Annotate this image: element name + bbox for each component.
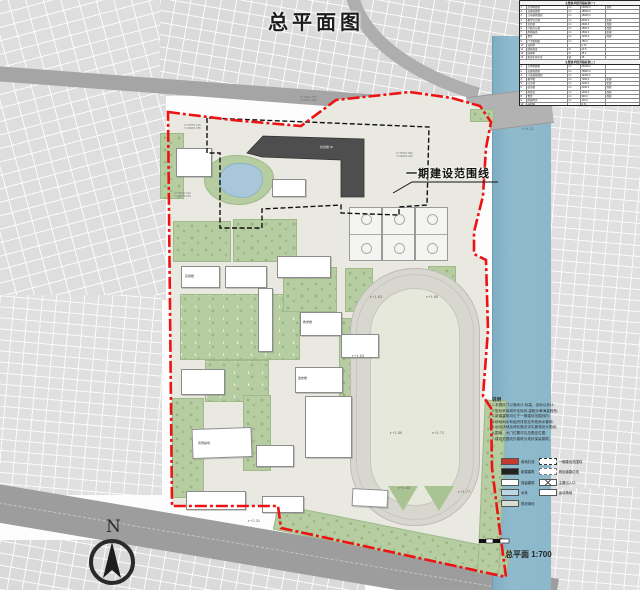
table-cell: 计容建筑面积 <box>527 74 568 77</box>
legend-label: 运动场地 <box>559 490 573 495</box>
table-cell: 9 <box>520 99 527 102</box>
building <box>256 445 294 467</box>
table-cell <box>606 14 640 17</box>
table-cell: 总建筑面积 <box>527 10 568 13</box>
spot-elevation: +1.63 <box>370 294 382 299</box>
building <box>225 266 267 288</box>
table-cell: 总用地面积 <box>527 6 568 9</box>
table-cell: 食堂 <box>527 95 568 98</box>
green-patch-northeast <box>470 109 494 122</box>
table-cell: m² <box>568 74 581 77</box>
table-cell: 保留 <box>606 91 640 94</box>
legend-item: 一期建设范围线 <box>539 458 583 464</box>
legend-swatch <box>501 468 519 475</box>
table-cell: 新建 <box>606 19 640 22</box>
building <box>272 179 306 197</box>
coordinate-label: X=78741.312Y=28079.158 <box>174 192 191 199</box>
court-circle <box>427 243 438 254</box>
context-blocks-west <box>0 295 162 495</box>
north-label: N <box>106 517 121 537</box>
table-cell: m² <box>568 27 581 30</box>
table-cell: 4 <box>520 78 527 81</box>
table-cell: 1 <box>520 65 527 68</box>
legend-column-right: 一期建设范围线规划道路红线主要出入口运动场地 <box>539 458 583 506</box>
table-cell: 13 <box>520 56 527 59</box>
table-cell: 新建 <box>606 78 640 81</box>
coordinate-label: X=78801.554Y=28131.906 <box>300 96 317 103</box>
coordinate-line: Y=28166.420 <box>396 155 413 158</box>
table-cell: 8400.0 <box>581 19 606 22</box>
table-cell: 建筑密度 <box>527 48 568 51</box>
dark-building-label: 综合楼 4F <box>320 145 333 149</box>
legend-label: 主要出入口 <box>559 480 576 485</box>
building <box>186 491 246 510</box>
table-cell: 1800.0 <box>581 27 606 30</box>
scale-label: 总平面 1:700 <box>505 549 552 560</box>
north-arrow-needle <box>103 542 121 578</box>
legend-swatch <box>539 458 557 465</box>
table-cell: 7 <box>520 91 527 94</box>
legend-item: 用地红线 <box>501 458 535 464</box>
spot-elevation: +1.59 <box>390 430 402 435</box>
table-cell: 4 <box>520 19 527 22</box>
site-plan-canvas: N 总平面图 一期建设范围线 总平面 1:700 综合楼 4F 主要技术经济指标… <box>0 0 640 590</box>
table-cell <box>606 56 640 59</box>
legend-label: 新建建筑 <box>521 469 535 474</box>
building <box>300 312 342 336</box>
table-cell: 现状 <box>606 6 640 9</box>
legend: 用地红线新建建筑保留建筑水系现状绿化 一期建设范围线规划道路红线主要出入口运动场… <box>501 458 613 506</box>
table-cell: 2 <box>520 10 527 13</box>
spot-elevation: +1.60 <box>398 485 410 490</box>
legend-label: 水系 <box>521 490 528 495</box>
spot-elevation: +1.71 <box>432 430 444 435</box>
table-cell: 保留 <box>606 95 640 98</box>
court-circle <box>361 214 372 225</box>
courtyard-green <box>180 294 300 360</box>
table-cell <box>606 40 640 43</box>
table-cell: 150.0 <box>581 40 606 43</box>
table-cell: 附属用房 <box>527 99 568 102</box>
building <box>305 396 352 458</box>
legend-label: 规划道路红线 <box>559 469 579 474</box>
table-cell: 3 <box>520 74 527 77</box>
building <box>295 367 343 393</box>
table-cell: 1500.0 <box>581 31 606 34</box>
table-cell: m² <box>568 6 581 9</box>
building <box>352 488 389 508</box>
table-cell <box>606 74 640 77</box>
table-cell: 宿舍楼 <box>527 86 568 89</box>
track-infield <box>370 288 460 506</box>
table-cell: 11 <box>520 48 527 51</box>
table-cell: 辆 <box>568 56 581 59</box>
table-cell: 综合楼 <box>527 82 568 85</box>
table-cell: 体育馆 <box>527 91 568 94</box>
table-cell: m² <box>568 82 581 85</box>
legend-item: 新建建筑 <box>501 469 535 475</box>
table-cell: 2600.0 <box>581 23 606 26</box>
legend-swatch <box>539 489 557 496</box>
table-cell: 0.71 <box>581 103 606 106</box>
legend-item: 规划道路红线 <box>539 469 583 475</box>
table-cell: 机动车停车位 <box>527 56 568 59</box>
legend-swatch <box>501 479 519 486</box>
building <box>181 369 225 395</box>
building-label: 教学楼 <box>303 320 312 324</box>
table-cell <box>606 10 640 13</box>
table-cell: m² <box>568 65 581 68</box>
table-cell: 900.0 <box>581 95 606 98</box>
building-label: 宿舍楼 <box>298 376 307 380</box>
table-cell: 45 <box>581 56 606 59</box>
building-label: 实验楼 <box>185 274 194 278</box>
table-cell: m² <box>568 10 581 13</box>
table-cell: m² <box>568 95 581 98</box>
pond <box>219 163 263 198</box>
table-cell <box>568 44 581 47</box>
spot-elevation: +1.63 <box>352 353 364 358</box>
table-cell: m² <box>568 78 581 81</box>
coordinate-line: Y=28083.785 <box>184 127 201 130</box>
table-cell: 8 <box>520 35 527 38</box>
table-cell: 总用地面积 <box>527 65 568 68</box>
basketball-court-1 <box>349 207 382 261</box>
table-cell: 保留 <box>606 23 640 26</box>
table-cell: 15800.0 <box>581 70 606 73</box>
spot-elevation: +4.21 <box>522 126 534 131</box>
legend-label: 现状绿化 <box>521 501 535 506</box>
table-cell <box>606 52 640 55</box>
court-circle <box>394 214 405 225</box>
table-cell: 20130.0 <box>581 65 606 68</box>
table-cell: 7 <box>520 31 527 34</box>
table-body: 主要技术经济指标表(一)1总用地面积m²23250.0现状2总建筑面积m²186… <box>520 1 640 106</box>
coordinate-label: X=78767.081Y=28166.420 <box>396 152 413 159</box>
table-cell: 1 <box>520 6 527 9</box>
basketball-court-2 <box>382 207 415 261</box>
legend-label: 一期建设范围线 <box>559 459 583 464</box>
table-cell: 5 <box>520 23 527 26</box>
legend-label: 保留建筑 <box>521 480 535 485</box>
coordinate-line: Y=28131.906 <box>300 99 317 102</box>
legend-item: 现状绿化 <box>501 500 535 506</box>
table-cell <box>606 99 640 102</box>
table-cell: 新建 <box>606 31 640 34</box>
building-label: 风雨操场 <box>198 441 210 445</box>
table-cell: m² <box>568 70 581 73</box>
coordinate-line: Y=28079.158 <box>174 195 191 198</box>
table-cell: 教学综合楼 <box>527 19 568 22</box>
legend-swatch <box>501 500 519 507</box>
table-cell: m² <box>568 23 581 26</box>
table-cell: 8 <box>520 95 527 98</box>
legend-item: 运动场地 <box>539 490 583 496</box>
table-cell: 22.5 <box>581 48 606 51</box>
table-cell: 实验楼 <box>527 23 568 26</box>
table-cell: 2 <box>520 70 527 73</box>
table-cell: 行政办公楼 <box>527 27 568 30</box>
table-cell: 6 <box>520 27 527 30</box>
basketball-court-3 <box>415 207 448 261</box>
table-cell: 保留 <box>606 35 640 38</box>
table-cell: 7200.0 <box>581 78 606 81</box>
context-blocks-northwest <box>0 0 166 300</box>
table-cell: 0.70 <box>581 44 606 47</box>
table-cell: 新建 <box>606 82 640 85</box>
legend-item: 保留建筑 <box>501 479 535 485</box>
table-cell: 5 <box>520 82 527 85</box>
court-circle <box>394 243 405 254</box>
legend-swatch <box>501 489 519 496</box>
table-cell: % <box>568 48 581 51</box>
table-cell: 教学楼 <box>527 78 568 81</box>
north-arrow: N <box>84 514 142 590</box>
table-cell <box>606 103 640 106</box>
table-cell: 保留 <box>606 27 640 30</box>
note-line: 7.建设范围线外建筑为现状保留建筑。 <box>492 437 614 443</box>
spot-elevation: +2.31 <box>248 518 260 523</box>
table-cell: m² <box>568 99 581 102</box>
table-cell: 10 <box>520 44 527 47</box>
table-cell: m² <box>568 35 581 38</box>
court-midline <box>350 234 381 235</box>
table-cell: m² <box>568 40 581 43</box>
legend-column-left: 用地红线新建建筑保留建筑水系现状绿化 <box>501 458 535 506</box>
table-cell: 保留 <box>606 86 640 89</box>
table-cell: m² <box>568 14 581 17</box>
building <box>258 288 273 352</box>
table-cell: 1200.0 <box>581 35 606 38</box>
legend-swatch <box>539 479 557 486</box>
table-cell: 1400.0 <box>581 91 606 94</box>
spot-elevation: +1.77 <box>458 489 470 494</box>
table-cell: m² <box>568 19 581 22</box>
garden-plot-1 <box>173 221 231 262</box>
table-cell: 10 <box>520 103 527 106</box>
table-cell: % <box>568 52 581 55</box>
table-cell: 23250.0 <box>581 6 606 9</box>
table-cell: 容积率 <box>527 44 568 47</box>
legend-swatch <box>539 468 557 475</box>
legend-item: 水系 <box>501 490 535 496</box>
table-cell: 3 <box>520 14 527 17</box>
table-cell: 门卫及附属 <box>527 40 568 43</box>
table-cell: 18600.0 <box>581 10 606 13</box>
court-circle <box>427 214 438 225</box>
legend-item: 主要出入口 <box>539 479 583 485</box>
building <box>277 256 331 278</box>
table-cell: 6 <box>520 86 527 89</box>
table-cell: 绿地率 <box>527 52 568 55</box>
table-cell: 计容建筑面积 <box>527 14 568 17</box>
table-cell: m² <box>568 31 581 34</box>
table-cell: 120.0 <box>581 99 606 102</box>
page-title: 总平面图 <box>268 6 364 35</box>
table-cell: m² <box>568 91 581 94</box>
coordinate-label: X=78787.125Y=28083.785 <box>184 124 201 131</box>
table-cell <box>568 103 581 106</box>
phase1-boundary-label: 一期建设范围线 <box>406 165 490 181</box>
table-cell <box>606 65 640 68</box>
scale-bar <box>479 536 511 546</box>
legend-swatch <box>501 458 519 465</box>
table-cell: 12 <box>520 52 527 55</box>
table-cell: 16200.0 <box>581 14 606 17</box>
table-cell: m² <box>568 86 581 89</box>
table-cell: 35.2 <box>581 52 606 55</box>
table-cell <box>606 70 640 73</box>
table-cell: 2200.0 <box>581 86 606 89</box>
table-cell: 风雨操场 <box>527 31 568 34</box>
table-cell <box>606 48 640 51</box>
technical-indicators-table: 主要技术经济指标表(一)1总用地面积m²23250.0现状2总建筑面积m²186… <box>519 0 640 106</box>
table-cell: 总建筑面积 <box>527 70 568 73</box>
table-cell: 14300.0 <box>581 74 606 77</box>
legend-label: 用地红线 <box>521 459 535 464</box>
notes-block: 说明 1.本图尺寸以毫米计,标高、坐标以米计;2.坐标采用城市坐标系,高程为黄海… <box>492 397 614 442</box>
court-midline <box>383 234 414 235</box>
table-cell: 3100.0 <box>581 82 606 85</box>
notes-lines: 1.本图尺寸以毫米计,标高、坐标以米计;2.坐标采用城市坐标系,高程为黄海高程系… <box>492 403 614 442</box>
table-row: 10容积率0.71 <box>520 103 640 106</box>
table-cell: 食堂 <box>527 35 568 38</box>
table-cell: 容积率 <box>527 103 568 106</box>
building <box>176 148 212 177</box>
table-cell: 9 <box>520 40 527 43</box>
spot-elevation: +1.65 <box>426 294 438 299</box>
court-midline <box>416 234 447 235</box>
building <box>262 496 304 513</box>
court-circle <box>361 243 372 254</box>
table-cell <box>606 44 640 47</box>
